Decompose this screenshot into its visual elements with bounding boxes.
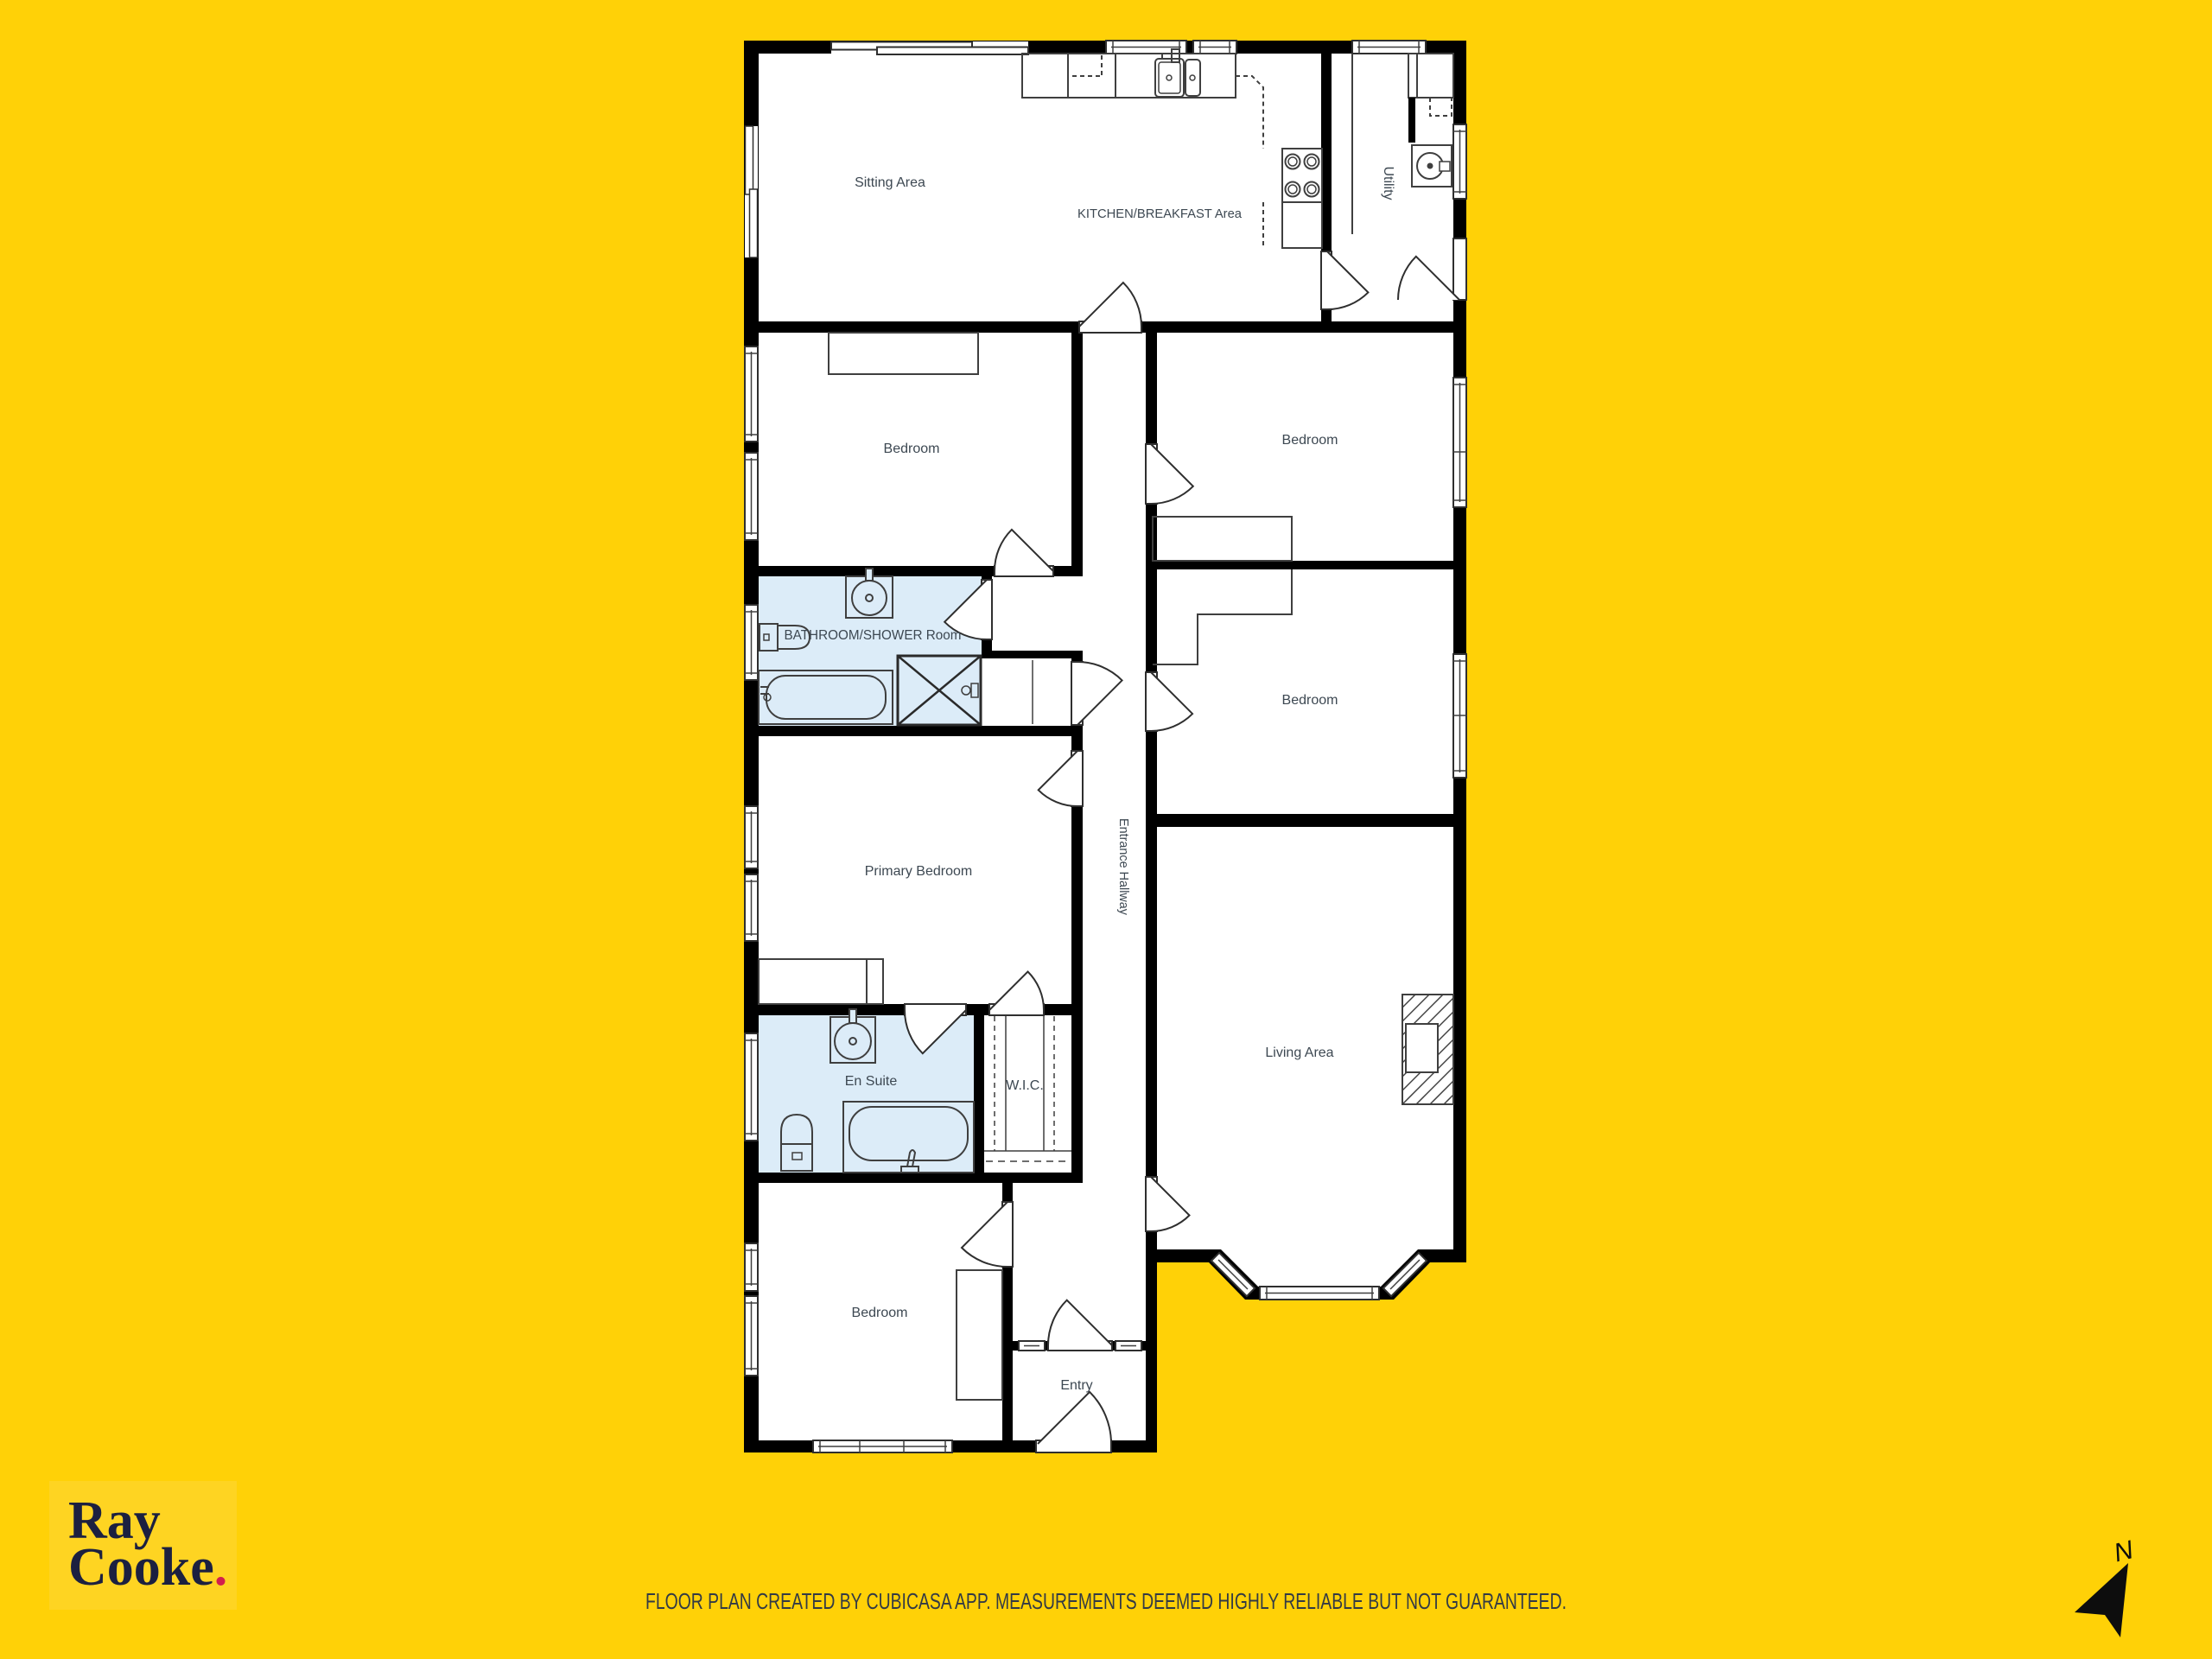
svg-text:En Suite: En Suite [845,1074,898,1089]
svg-text:Cooke.: Cooke. [68,1538,227,1597]
svg-text:Living Area: Living Area [1265,1046,1333,1060]
svg-text:Bedroom: Bedroom [1282,433,1338,448]
svg-text:Bedroom: Bedroom [884,442,940,456]
svg-text:W.I.C.: W.I.C. [1006,1078,1044,1093]
svg-text:Utility: Utility [1381,166,1395,200]
svg-text:BATHROOM/SHOWER Room: BATHROOM/SHOWER Room [785,628,962,643]
svg-text:Bedroom: Bedroom [1282,693,1338,708]
svg-text:Primary Bedroom: Primary Bedroom [865,864,972,879]
svg-text:Entry: Entry [1060,1378,1092,1393]
svg-text:Entrance Hallway: Entrance Hallway [1116,818,1130,916]
svg-text:FLOOR PLAN CREATED BY CUBICASA: FLOOR PLAN CREATED BY CUBICASA APP. MEAS… [645,1588,1567,1614]
svg-text:Bedroom: Bedroom [852,1306,908,1320]
svg-text:KITCHEN/BREAKFAST Area: KITCHEN/BREAKFAST Area [1077,207,1243,221]
svg-text:Sitting Area: Sitting Area [855,175,925,190]
